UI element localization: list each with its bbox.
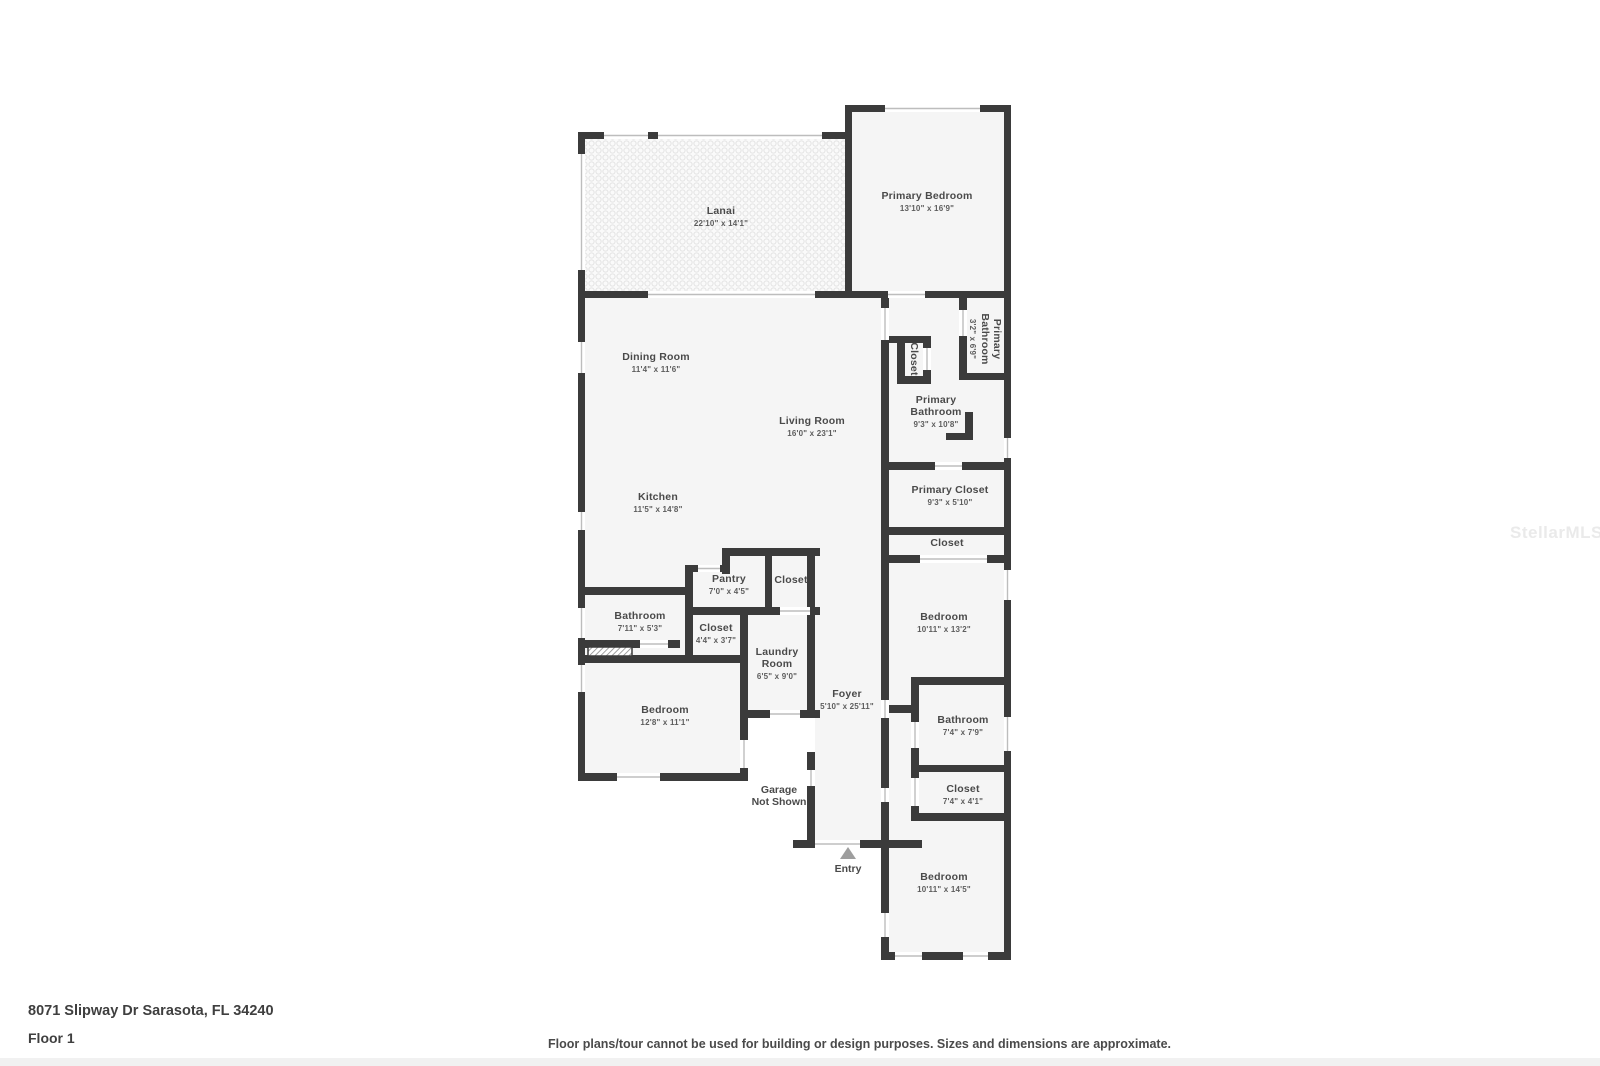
room-label-closet-band: Closet xyxy=(930,538,963,550)
room-label-primary-bedroom: Primary Bedroom13'10" x 16'9" xyxy=(881,191,972,213)
room-label-bathroom-1: Bathroom7'11" x 5'3" xyxy=(614,611,665,633)
bedroom1-floor xyxy=(585,718,748,780)
room-label-dining-room: Dining Room11'4" x 11'6" xyxy=(622,352,690,374)
room-label-primary-closet: Primary Closet9'3" x 5'10" xyxy=(912,485,989,507)
room-label-primary-bathroom-small: Primary Bathroom3'2" x 6'9" xyxy=(968,313,1002,365)
room-label-bedroom-3: Bedroom10'11" x 14'5" xyxy=(917,872,971,894)
entry-label: Entry xyxy=(835,863,862,875)
room-label-kitchen: Kitchen11'5" x 14'8" xyxy=(633,492,682,514)
room-label-lanai: Lanai22'10" x 14'1" xyxy=(694,206,748,228)
room-label-closet-3: Closet7'4" x 4'1" xyxy=(943,784,983,806)
room-label-bedroom-2: Bedroom10'11" x 13'2" xyxy=(917,612,971,634)
room-label-closet-2: Closet4'4" x 3'7" xyxy=(696,623,736,645)
property-address: 8071 Slipway Dr Sarasota, FL 34240 xyxy=(28,1003,274,1019)
disclaimer-text: Floor plans/tour cannot be used for buil… xyxy=(548,1037,1171,1051)
entry-arrow-icon xyxy=(840,847,856,859)
bottom-divider xyxy=(0,1058,1600,1066)
floor-plan-page: Lanai22'10" x 14'1" Primary Bedroom13'10… xyxy=(0,0,1600,1066)
floor-plan-drawing xyxy=(0,0,1600,1066)
shower-hatch xyxy=(588,647,632,656)
room-label-closet-hall: Closet xyxy=(774,575,807,587)
foyer-floor xyxy=(815,718,881,840)
stellar-mls-watermark: StellarMLS xyxy=(1510,523,1600,543)
room-label-foyer: Foyer5'10" x 25'11" xyxy=(820,689,874,711)
room-label-bedroom-1: Bedroom12'8" x 11'1" xyxy=(640,705,689,727)
room-label-living-room: Living Room16'0" x 23'1" xyxy=(779,416,845,438)
room-label-primary-bathroom: Primary Bathroom9'3" x 10'8" xyxy=(908,395,964,429)
garage-note: GarageNot Shown xyxy=(752,784,807,808)
room-label-bathroom-2: Bathroom7'4" x 7'9" xyxy=(937,715,988,737)
room-label-closet-suite: Closet xyxy=(907,342,919,375)
room-label-pantry: Pantry7'0" x 4'5" xyxy=(709,574,749,596)
room-label-laundry-room: Laundry Room6'5" x 9'0" xyxy=(749,647,805,681)
floor-number-label: Floor 1 xyxy=(28,1030,75,1046)
